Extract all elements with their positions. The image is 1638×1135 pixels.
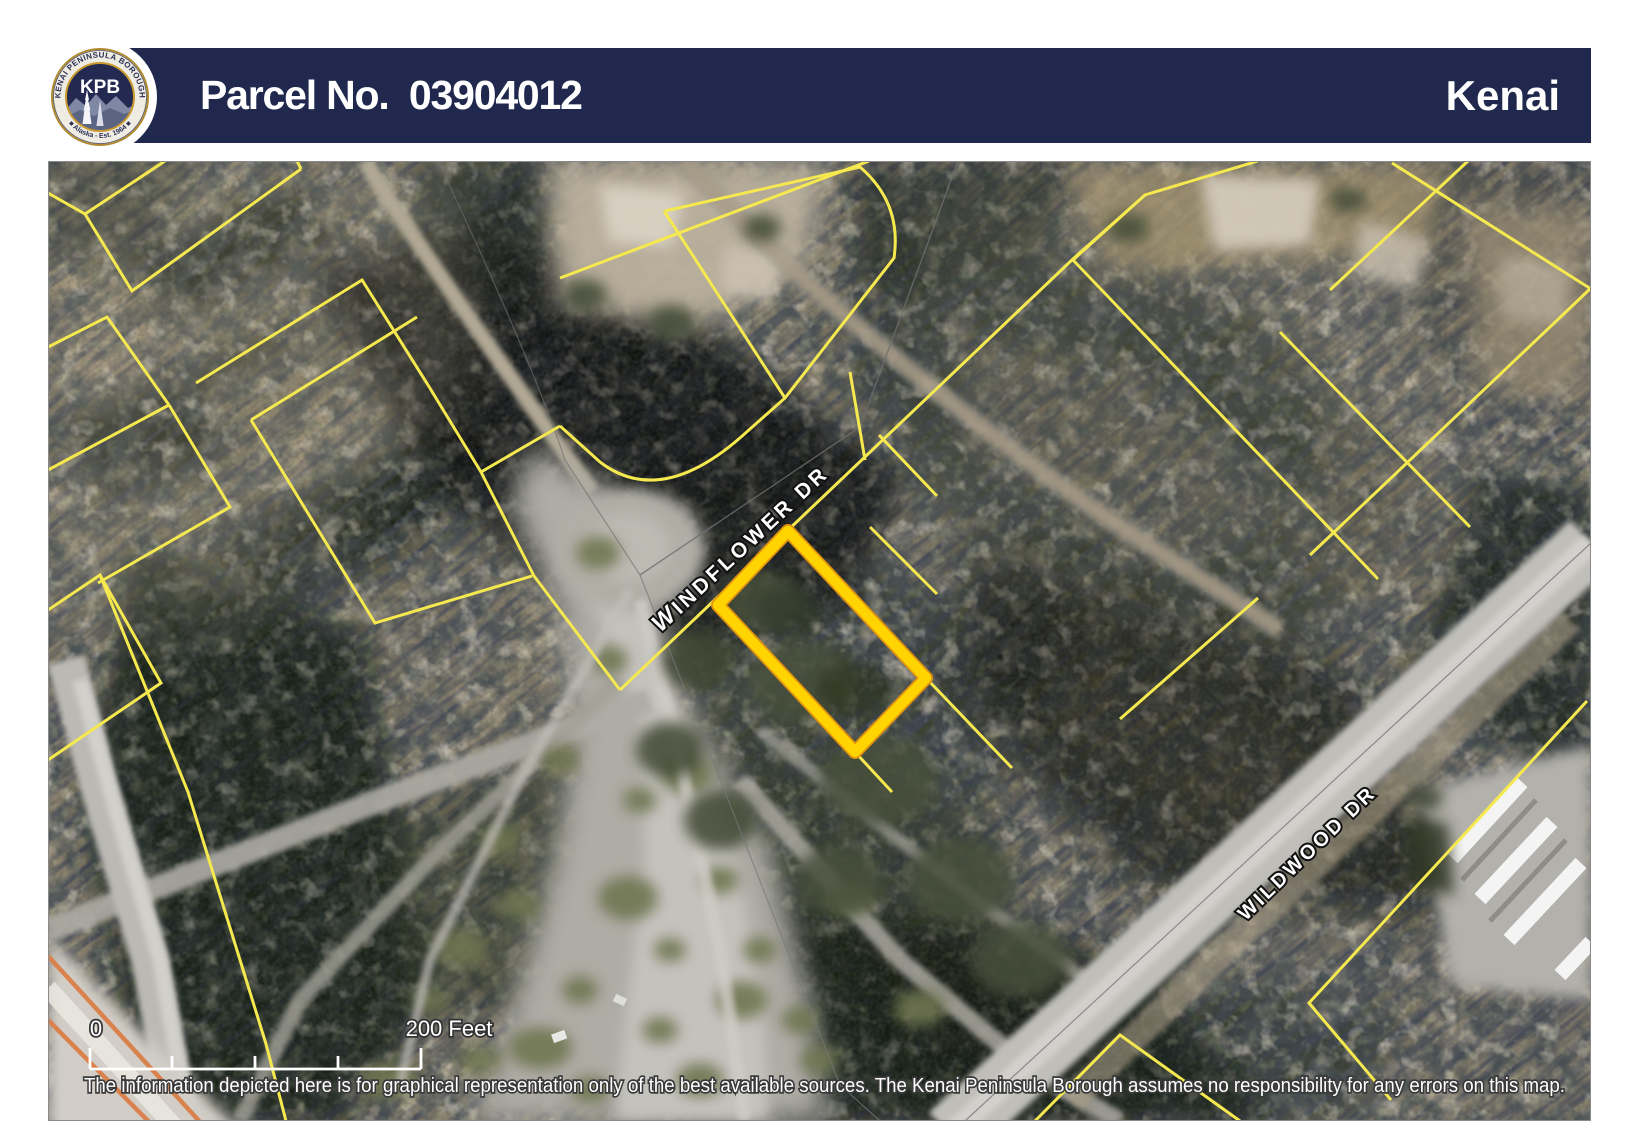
svg-text:200 Feet: 200 Feet <box>406 1016 493 1041</box>
svg-text:0: 0 <box>90 1016 102 1041</box>
svg-text:KPB: KPB <box>80 77 120 98</box>
svg-text:The information depicted here: The information depicted here is for gra… <box>84 1074 1565 1097</box>
